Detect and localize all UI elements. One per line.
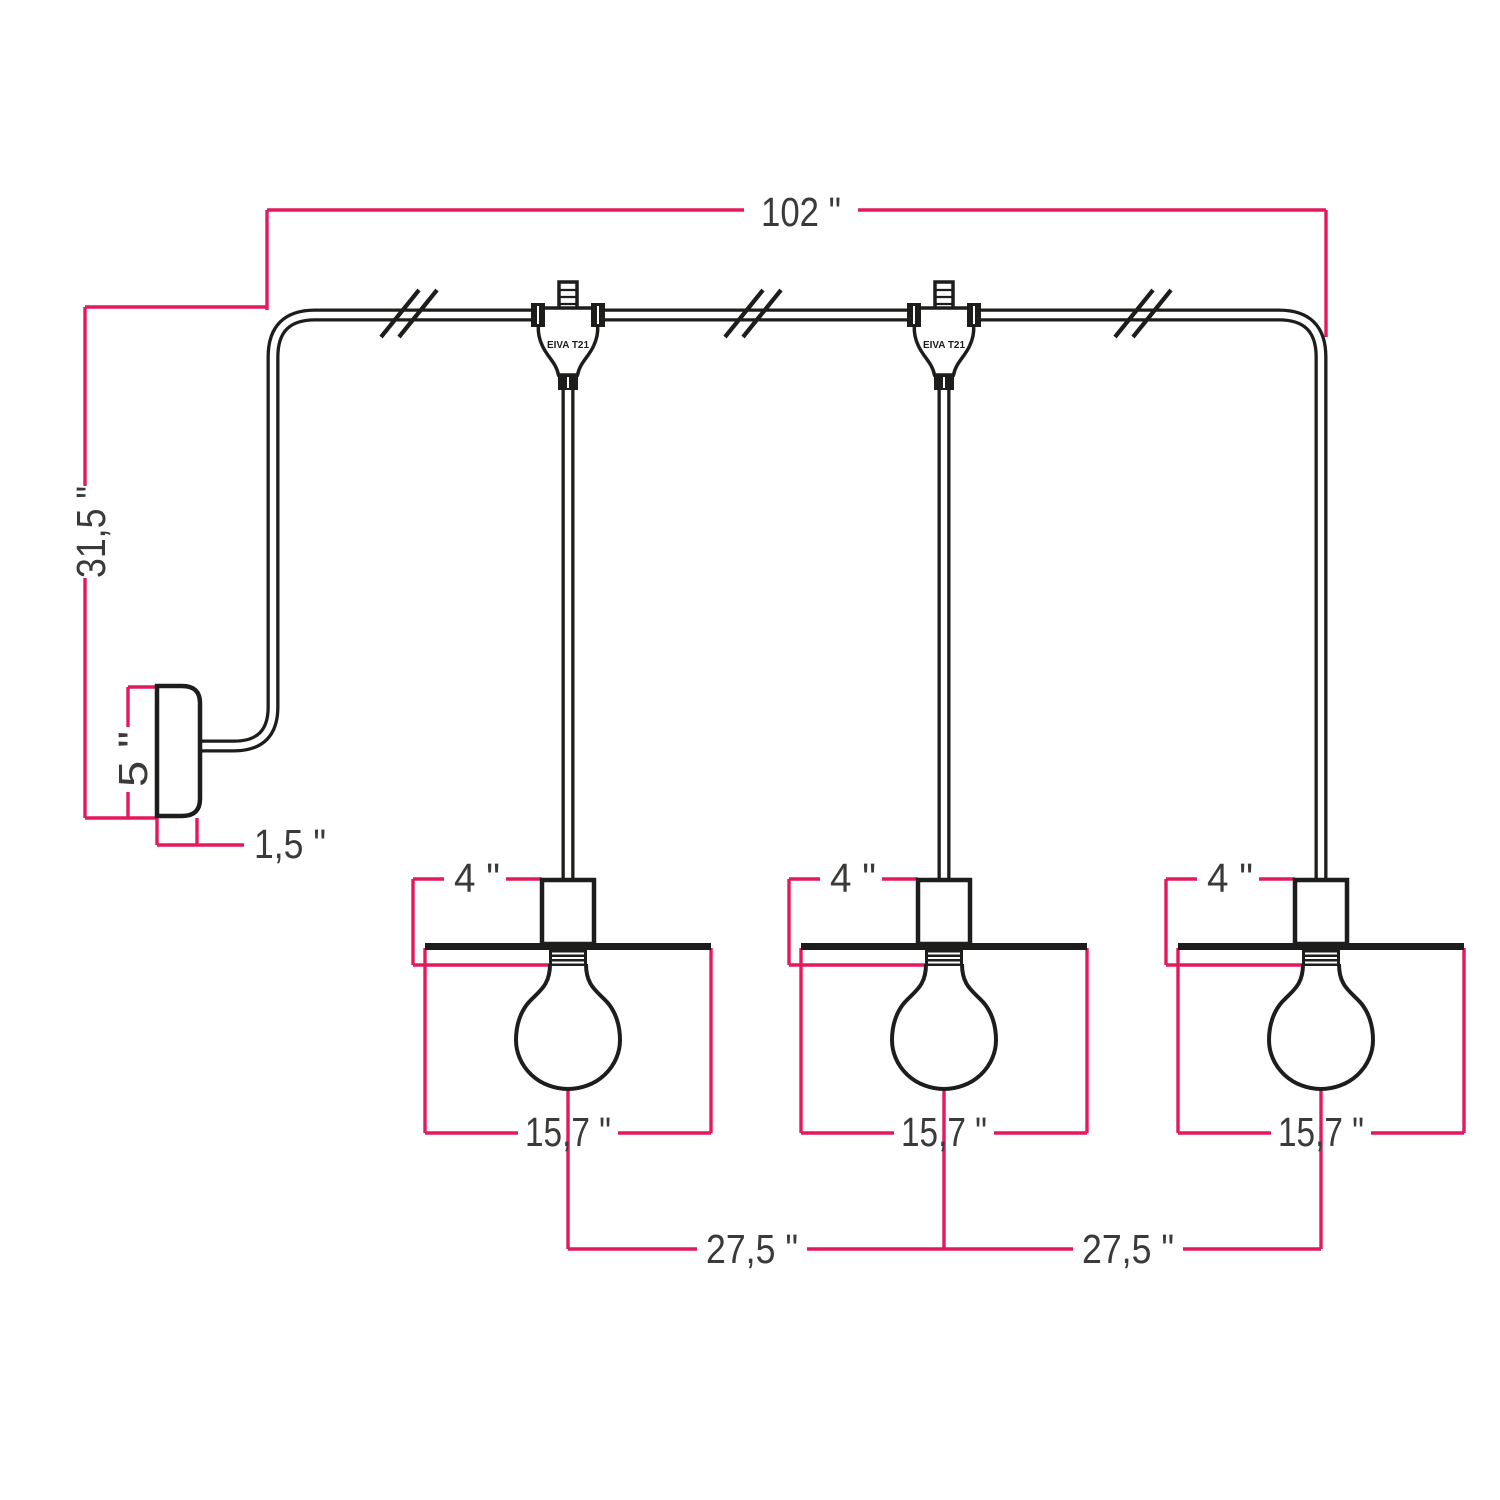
- label-wall-plate-depth: 1,5 ": [254, 821, 326, 867]
- label-socket-height-3: 4 ": [1207, 855, 1253, 901]
- label-shade-diameter-2: 15,7 ": [901, 1109, 987, 1155]
- label-wall-plate-height: 5 ": [110, 731, 156, 787]
- label-spacing-right: 27,5 ": [1082, 1226, 1174, 1272]
- label-total-width: 102 ": [761, 189, 841, 235]
- label-shade-diameter-3: 15,7 ": [1278, 1109, 1364, 1155]
- t-connector-1: [531, 282, 605, 390]
- label-shade-diameter-1: 15,7 ": [525, 1109, 611, 1155]
- wall-plate: [157, 686, 200, 816]
- dim-plate-depth-lines: [157, 818, 244, 845]
- dimension-plate-depth: [157, 818, 244, 845]
- label-connector-model-1: EIVA T21: [547, 339, 589, 351]
- drawing-canvas: 102 " 31,5 " 5 " 1,5 " 4 " 4 " 4 " 15,7 …: [0, 0, 1500, 1500]
- t-connector-2: [907, 282, 981, 390]
- main-cable: [200, 315, 1321, 884]
- label-socket-height-2: 4 ": [830, 855, 876, 901]
- pendant-head-3: [1178, 880, 1464, 1089]
- label-spacing-left: 27,5 ": [706, 1226, 798, 1272]
- pendant-head-1: [425, 880, 711, 1089]
- drop-cables: [568, 386, 944, 884]
- label-connector-model-2: EIVA T21: [923, 339, 965, 351]
- label-socket-height-1: 4 ": [454, 855, 500, 901]
- pendant-head-2: [801, 880, 1087, 1089]
- pendant-lamp-technical-drawing: 102 " 31,5 " 5 " 1,5 " 4 " 4 " 4 " 15,7 …: [0, 0, 1500, 1500]
- label-wall-drop-height: 31,5 ": [68, 486, 114, 578]
